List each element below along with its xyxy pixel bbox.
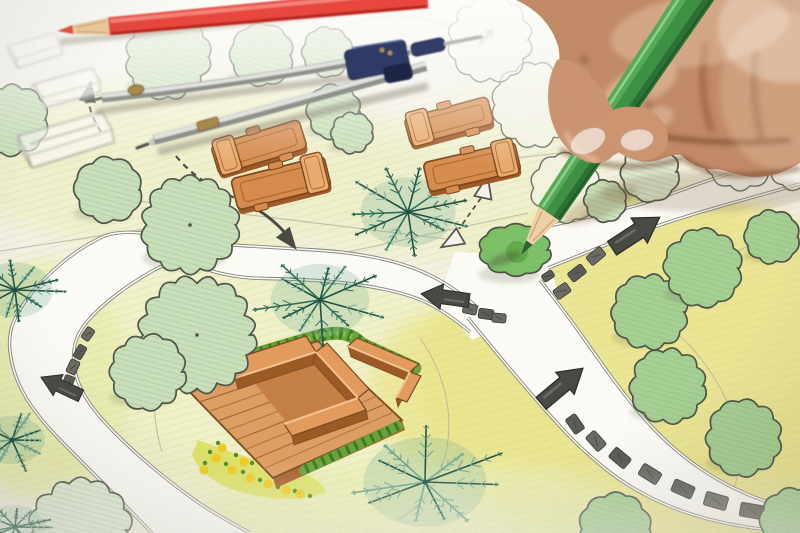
photo-landscape-plan [0, 0, 800, 533]
landscape-plan-canvas [0, 0, 800, 533]
